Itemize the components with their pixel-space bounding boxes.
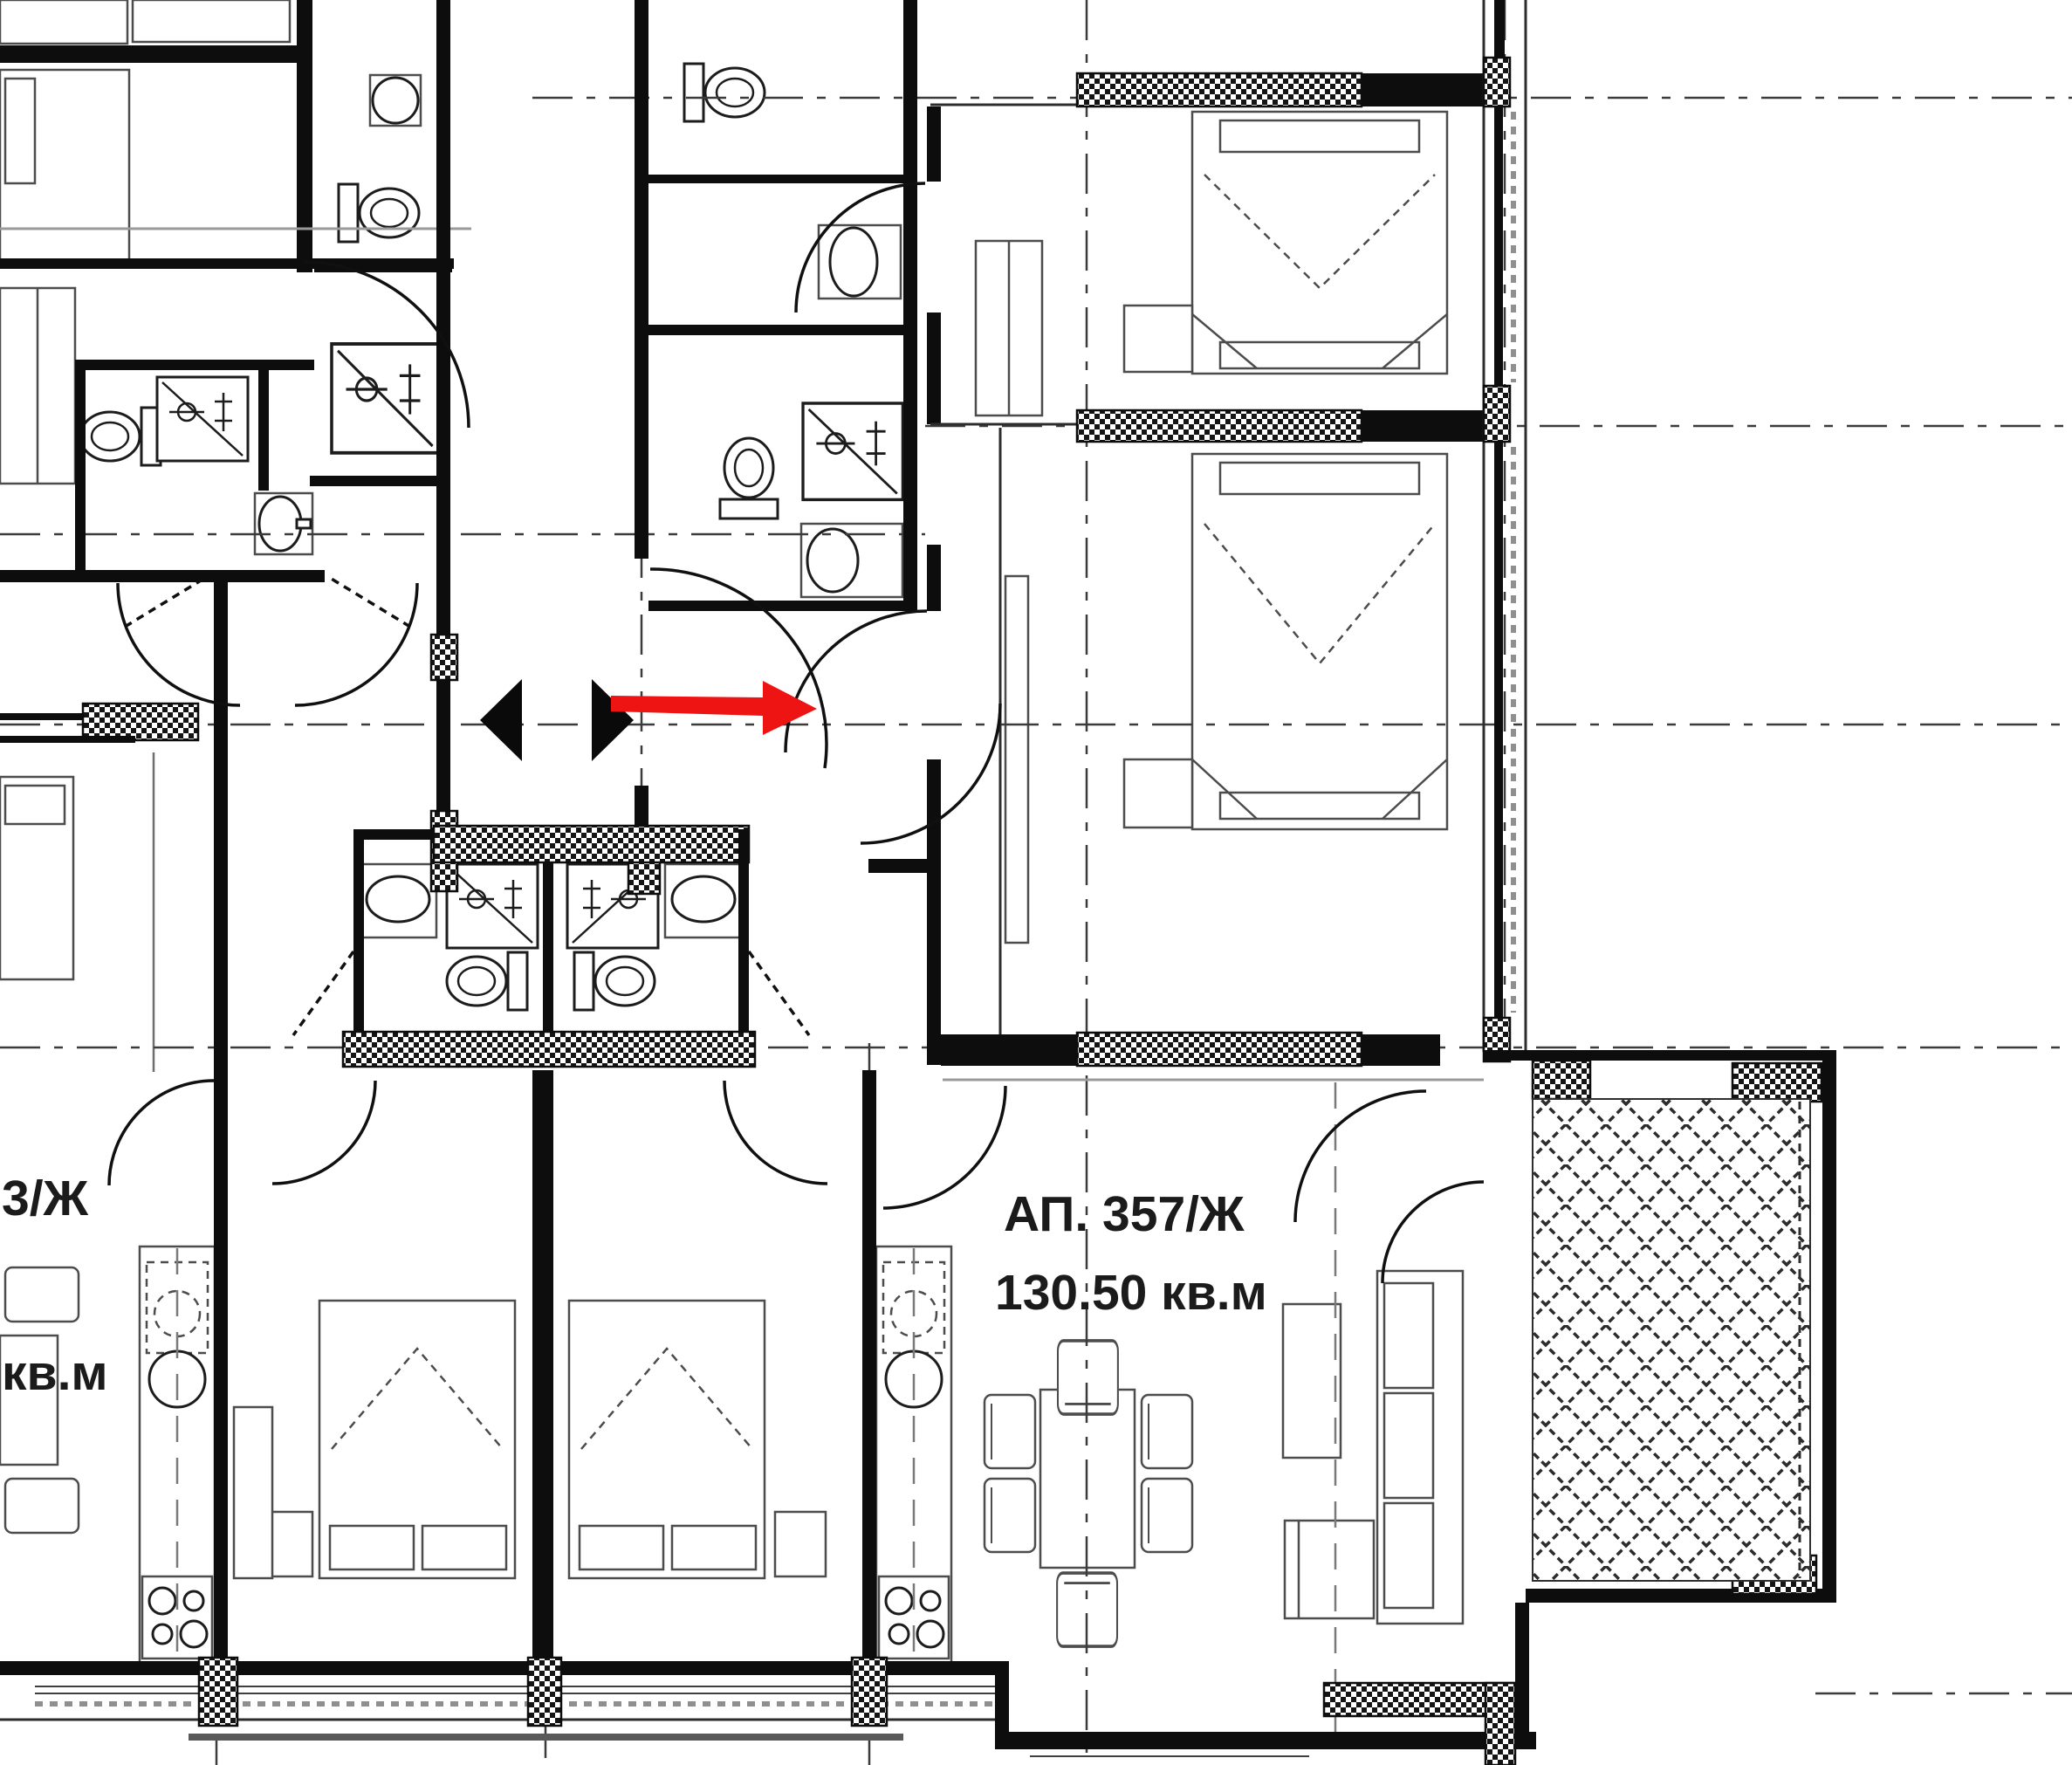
toilet: [574, 952, 655, 1010]
structural-column: [1732, 1063, 1822, 1102]
sink: [255, 493, 312, 554]
wall: [1515, 1603, 1529, 1734]
corridor-wall: [436, 0, 450, 635]
sink: [665, 864, 742, 937]
wall: [927, 312, 941, 424]
wall: [927, 106, 941, 182]
bed: [569, 1301, 765, 1578]
structural-column: [83, 704, 198, 740]
floor-plan-drawing: АП. 357/Ж 130.50 кв.м 3/Ж кв.м: [0, 0, 2072, 1765]
wall: [0, 736, 135, 743]
wall: [310, 476, 449, 486]
shear-wall: [1077, 1033, 1362, 1066]
wall: [1362, 73, 1488, 106]
party-wall: [214, 582, 228, 1665]
pier-column: [199, 1658, 237, 1726]
wall: [868, 859, 941, 873]
balcony-wall: [1484, 1050, 1835, 1061]
corridor-wall: [635, 0, 648, 559]
nightstand: [1124, 306, 1192, 372]
wall: [648, 175, 903, 183]
sink: [819, 225, 901, 299]
wall: [1362, 1034, 1440, 1066]
shear-wall: [343, 1032, 755, 1067]
toilet: [447, 952, 527, 1010]
balcony: [1533, 1099, 1810, 1581]
shower-cabin: [332, 344, 439, 453]
party-wall: [532, 1070, 553, 1664]
armchair: [1285, 1521, 1374, 1618]
shower-cabin: [803, 403, 902, 499]
window-frame: [1494, 442, 1503, 1018]
shower-cabin: [157, 377, 248, 461]
apartment-area-label: 130.50 кв.м: [995, 1265, 1267, 1321]
window-frame: [1494, 106, 1503, 386]
structural-column: [1484, 386, 1510, 442]
shear-wall: [1485, 1683, 1515, 1765]
bed: [319, 1301, 515, 1578]
left-apartment-area-label-partial: кв.м: [2, 1345, 108, 1401]
wall: [1362, 410, 1488, 442]
toilet: [339, 184, 419, 242]
sink: [360, 864, 436, 937]
balcony-paving-hatch: [1533, 1099, 1810, 1581]
wardrobe: [234, 1407, 272, 1578]
wall: [941, 1034, 1077, 1066]
party-wall: [862, 1070, 876, 1664]
nightstand: [775, 1512, 826, 1576]
bed: [0, 777, 73, 979]
sofa: [1377, 1271, 1463, 1624]
bed: [0, 0, 129, 260]
wall: [0, 713, 84, 720]
wall: [738, 829, 749, 1039]
structural-column: [1533, 1061, 1590, 1099]
nightstand: [1124, 759, 1192, 828]
structural-column: [431, 635, 457, 680]
floor-plan-page: АП. 357/Ж 130.50 кв.м 3/Ж кв.м: [0, 0, 2072, 1765]
wall: [297, 0, 312, 272]
wall: [927, 759, 941, 873]
shear-wall: [1077, 410, 1362, 442]
bed: [1192, 454, 1447, 829]
corridor-wall: [436, 680, 450, 811]
wall: [0, 570, 325, 582]
exterior-wall: [995, 1732, 1536, 1749]
pier-column: [528, 1658, 561, 1726]
pier-column: [852, 1658, 887, 1726]
wall: [927, 873, 941, 1065]
sliding-wardrobe: [1005, 576, 1028, 943]
shear-wall: [1077, 73, 1362, 106]
wall: [0, 45, 307, 63]
wall: [543, 862, 553, 1037]
toilet: [80, 408, 161, 465]
wall: [648, 601, 903, 611]
shear-wall: [434, 826, 749, 862]
apartment-number-label: АП. 357/Ж: [1004, 1186, 1245, 1242]
toilet: [720, 438, 778, 519]
wall: [1494, 0, 1505, 58]
sink: [370, 75, 421, 126]
toilet: [684, 64, 765, 121]
wall: [353, 829, 364, 1039]
wall: [258, 360, 269, 491]
structural-column: [1484, 58, 1510, 106]
left-apartment-number-label-partial: 3/Ж: [2, 1171, 89, 1226]
balcony-wall: [1822, 1050, 1836, 1602]
wardrobe: [133, 0, 290, 42]
wall: [353, 829, 436, 840]
bed: [1192, 112, 1447, 374]
coffee-table: [1283, 1304, 1341, 1458]
shower-cabin: [447, 864, 538, 948]
wall: [927, 545, 941, 611]
wall: [648, 325, 903, 335]
wall: [75, 360, 314, 370]
wall: [75, 360, 86, 582]
wall: [903, 0, 917, 611]
